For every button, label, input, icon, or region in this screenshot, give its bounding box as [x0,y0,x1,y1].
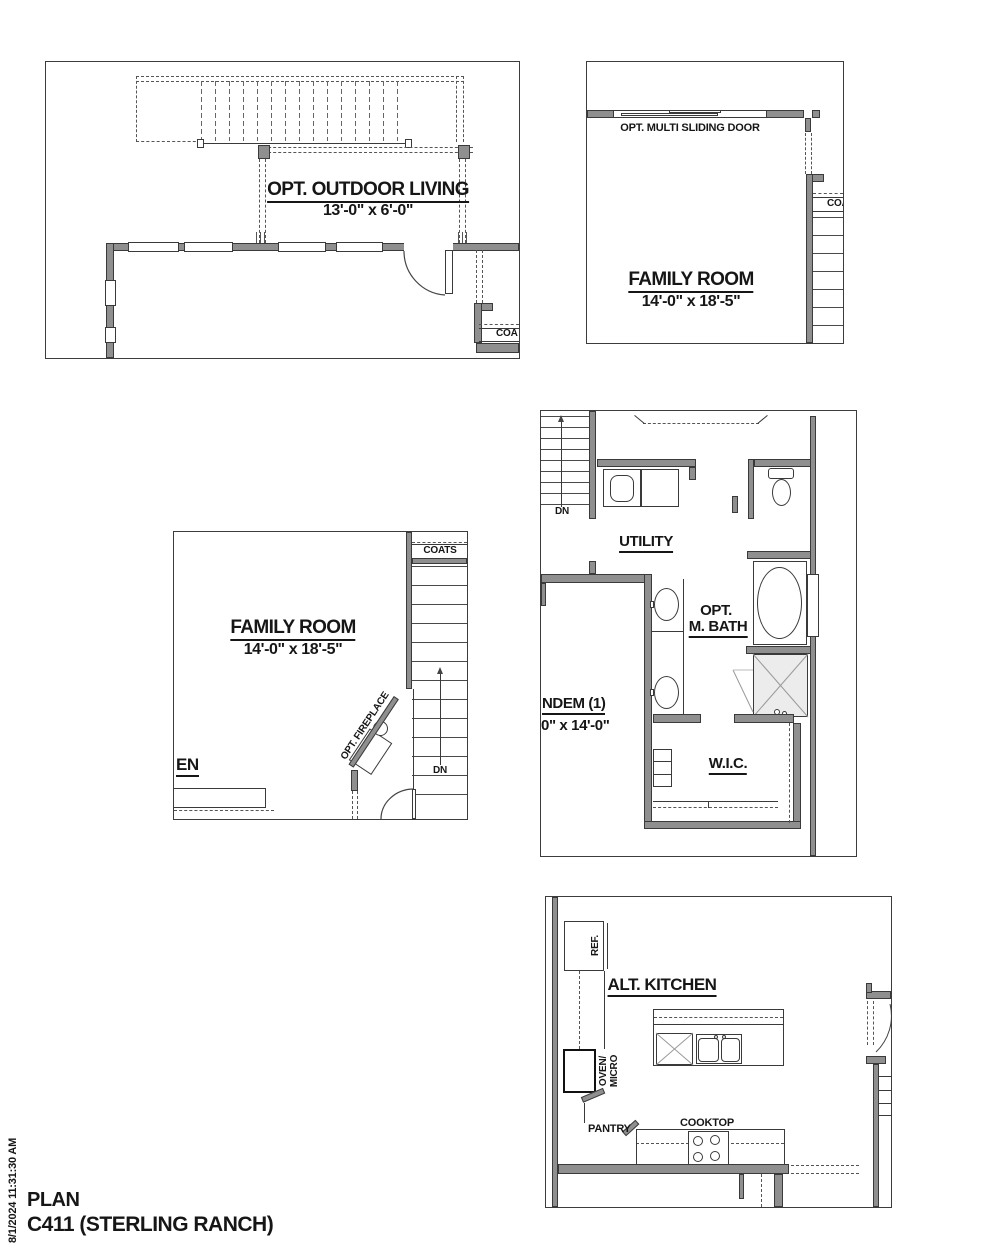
washer-drum [610,475,634,502]
bath-label-line2: M. BATH [689,619,748,638]
dishwasher-x [656,1033,693,1065]
bath-label-line1: OPT. [700,603,732,619]
patio-beam [258,147,473,148]
faucet [650,689,654,696]
counter-edge [636,1129,637,1164]
stair-direction-line [561,421,562,507]
toilet-bowl [772,479,791,506]
window [278,242,326,252]
wic-rod [789,723,790,823]
sink [654,588,679,621]
room-dims: 14'-0" x 18'-5" [642,294,741,311]
center-dashed [761,1174,762,1207]
tandem-dims: 0" x 14'-0" [541,718,609,734]
vanity-counter-edge [683,579,684,714]
utility-label: UTILITY [619,534,673,553]
window [128,242,179,252]
wc-wall [748,459,754,519]
oven-label-line2: MICRO [609,1055,620,1087]
stair-notch [197,139,204,148]
wall-jamb [689,467,696,480]
closet-shelf [479,341,519,342]
counter [174,788,266,808]
ceiling-break-end [757,415,768,424]
plan-sheet: OPT. OUTDOOR LIVING 13'-0" x 6'-0" COA [0,0,1000,1250]
sink [654,676,679,709]
stair-arrow [558,415,564,422]
wall-ticks [256,232,265,243]
sliding-panel [669,110,721,113]
exterior-wall [558,1164,789,1174]
patio-beam [258,152,473,153]
wic-shelf-unit [653,749,672,787]
tub-deck-wall [747,551,816,559]
counter-line [636,1129,784,1130]
exterior-wall [552,897,558,1207]
opening-dashed [476,250,477,303]
wall-jamb [866,983,872,993]
shelf-line [879,1115,891,1116]
counter-edge [604,971,605,1049]
patio-post [258,145,270,159]
shelf-line [879,1090,891,1091]
room-title: OPT. OUTDOOR LIVING [267,180,469,203]
wic-shelf-line [653,761,672,762]
sink-faucet [714,1035,718,1039]
closet-label: COATS [423,546,456,557]
room-dims: 13'-0" x 6'-0" [323,203,413,220]
counter-dashed [174,810,274,811]
pantry-wall [584,1103,585,1123]
vanity-divider [652,631,683,632]
wic-wall [734,714,794,723]
window [105,280,116,306]
wall-segment [476,343,519,353]
island-counter-line [654,1024,783,1025]
oven-micro [563,1049,596,1093]
faucet [650,601,654,608]
door-swing-arc [875,1002,891,1054]
closet-label: COA [496,329,518,340]
sheet-title-line2: C411 (STERLING RANCH) [27,1214,273,1236]
stair-edge [201,143,411,144]
closet-rod [813,193,843,194]
shower-door [733,668,754,712]
window [184,242,233,252]
closet-rod [412,542,467,543]
dryer [641,469,679,507]
door-leaf [445,250,453,294]
utility-wall [597,459,696,467]
window [105,327,116,343]
room-title: FAMILY ROOM [230,618,355,641]
wall-jamb [805,118,811,132]
stair-direction-line [440,673,441,765]
shelf-line [879,1103,891,1104]
stair-wall [806,174,813,343]
shelf-line [879,1076,891,1077]
sliding-door-label: OPT. MULTI SLIDING DOOR [620,123,759,135]
opening-dashed [805,133,806,174]
cooktop-label: COOKTOP [680,1118,734,1130]
plan-alt-kitchen: REF. OVEN/ MICRO ALT. KITCHEN PANTRY COO… [545,896,892,1208]
wall-segment [866,1056,886,1064]
room-title: FAMILY ROOM [628,270,753,293]
door-leaf [412,789,416,819]
wall-stub [739,1174,744,1199]
tub-deck-wall [746,646,816,654]
wic-shelf-line [653,774,672,775]
opening-dashed [791,1173,859,1174]
wall-jamb [541,583,546,606]
wall-segment [412,558,467,564]
wic-rod [653,807,778,808]
wall-segment [474,303,482,343]
tub-basin [757,567,802,639]
door-swing-arc [404,251,446,295]
pantry-label: PANTRY [588,1124,631,1136]
island-dashed [654,1017,783,1018]
opening-dashed [357,791,358,819]
closet-shelf [813,211,843,212]
refrigerator-edge [607,923,608,969]
opening-dashed [482,250,483,303]
hall-wall [541,574,646,583]
wall-jamb [732,496,738,513]
door-swing-arc [381,789,414,819]
burner [710,1151,720,1161]
print-timestamp: 8/1/2024 11:31:30 AM [8,1138,20,1243]
stair-arrow [437,667,443,674]
opening-dashed [873,1001,874,1045]
wic-wall [653,714,701,723]
burner [693,1152,703,1162]
closet-rod [479,324,519,325]
stair-treads [813,217,843,343]
opening-dashed [352,791,353,819]
stair-treads [201,81,409,141]
interior-wall [873,1064,879,1207]
stair-treads [541,416,591,509]
plan-opt-outdoor-living: OPT. OUTDOOR LIVING 13'-0" x 6'-0" COA [45,61,520,359]
oven-micro-label: OVEN/ MICRO [598,1055,620,1087]
closet-label: COA [827,199,844,210]
wall-segment [351,770,358,791]
toilet-tank [768,468,794,479]
exterior-wall [812,110,820,118]
patio-edge [265,159,266,243]
room-title: ALT. KITCHEN [608,976,717,997]
room-dims: 14'-0" x 18'-5" [244,642,343,659]
garage-wall [644,574,652,829]
burner [710,1135,720,1145]
ceiling-break-dashed [643,423,759,424]
sliding-panel [621,113,718,116]
shower-x [753,654,808,717]
oven-label-line1: OVEN/ [598,1055,609,1087]
opening-dashed [791,1165,859,1166]
deck-outline [463,76,464,142]
window [807,574,819,637]
plan-utility-mbath-wic: DN UTILITY OPT. M. BATH [540,410,857,857]
deck-outline [136,76,137,142]
patio-edge [259,159,260,243]
wic-label: W.I.C. [709,756,747,775]
wc-wall [754,459,816,467]
wall-stub [774,1174,783,1207]
stair-label: DN [555,507,569,518]
deck-outline [136,76,464,77]
sink-faucet [722,1035,726,1039]
counter-dashed [579,971,580,1049]
plan-family-room-sliding-door: OPT. MULTI SLIDING DOOR COA FAMILY ROOM … [586,61,844,344]
wall-ticks [458,232,467,243]
wic-wall [644,821,801,829]
sink-basin [721,1038,740,1062]
wic-shelf-divider [708,801,709,808]
stair-label: DN [433,766,447,777]
patio-post [458,145,470,159]
exterior-wall [766,110,804,118]
tandem-label: NDEM (1) [542,696,605,715]
opening-dashed [867,1001,868,1045]
ceiling-break-end [634,415,645,424]
deck-outline [456,76,457,142]
stair-wall [589,411,596,519]
window [336,242,383,252]
counter-edge [784,1129,785,1164]
exterior-wall [587,110,614,118]
sink-basin [698,1038,719,1062]
wic-shelf [653,801,778,802]
wall-jamb [589,561,596,574]
deck-outline [136,141,201,142]
cut-room-label: EN [176,756,199,777]
opening-dashed [811,133,812,174]
plan-family-room-fireplace: COATS DN FAMILY ROOM 14'-0" x 18'-5" OPT… [173,531,468,820]
sheet-title-line1: PLAN [27,1190,79,1211]
wic-wall [793,723,801,829]
refrigerator-label: REF. [590,935,601,956]
burner [693,1136,703,1146]
